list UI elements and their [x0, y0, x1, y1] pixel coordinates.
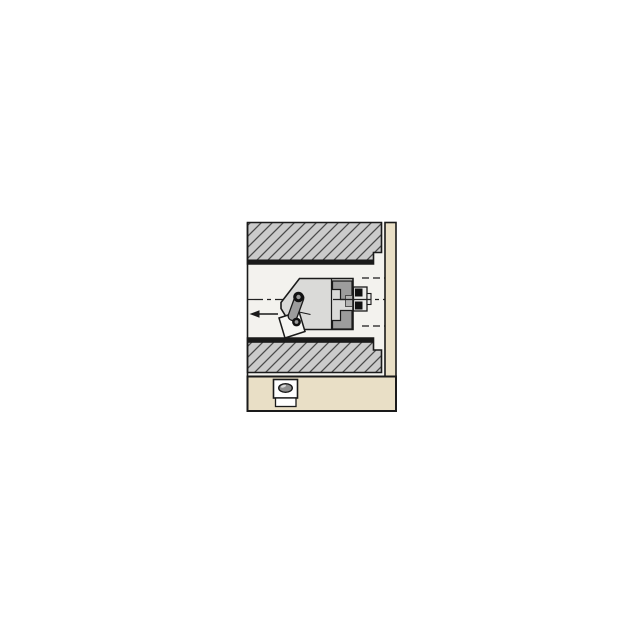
shank-plan-view-block: [248, 377, 397, 412]
knob-lug-upper: [355, 289, 363, 297]
insert-screw-center: [295, 320, 299, 324]
pocket-tab: [276, 398, 297, 407]
machined-bore-surface-lower: [248, 338, 374, 343]
workpiece-section-upper: [248, 223, 382, 265]
workpiece-section-lower: [248, 338, 382, 373]
insert-pocket-plan-view: [274, 380, 298, 407]
fixture-flange-strip: [385, 223, 396, 377]
clamp-screw-center: [296, 295, 300, 299]
illustration-canvas: [0, 0, 640, 640]
machined-bore-surface-upper: [248, 260, 374, 265]
boring-tool-diagram: [0, 0, 640, 640]
knob-lug-lower: [355, 302, 363, 310]
coupling-hub: [346, 296, 353, 307]
